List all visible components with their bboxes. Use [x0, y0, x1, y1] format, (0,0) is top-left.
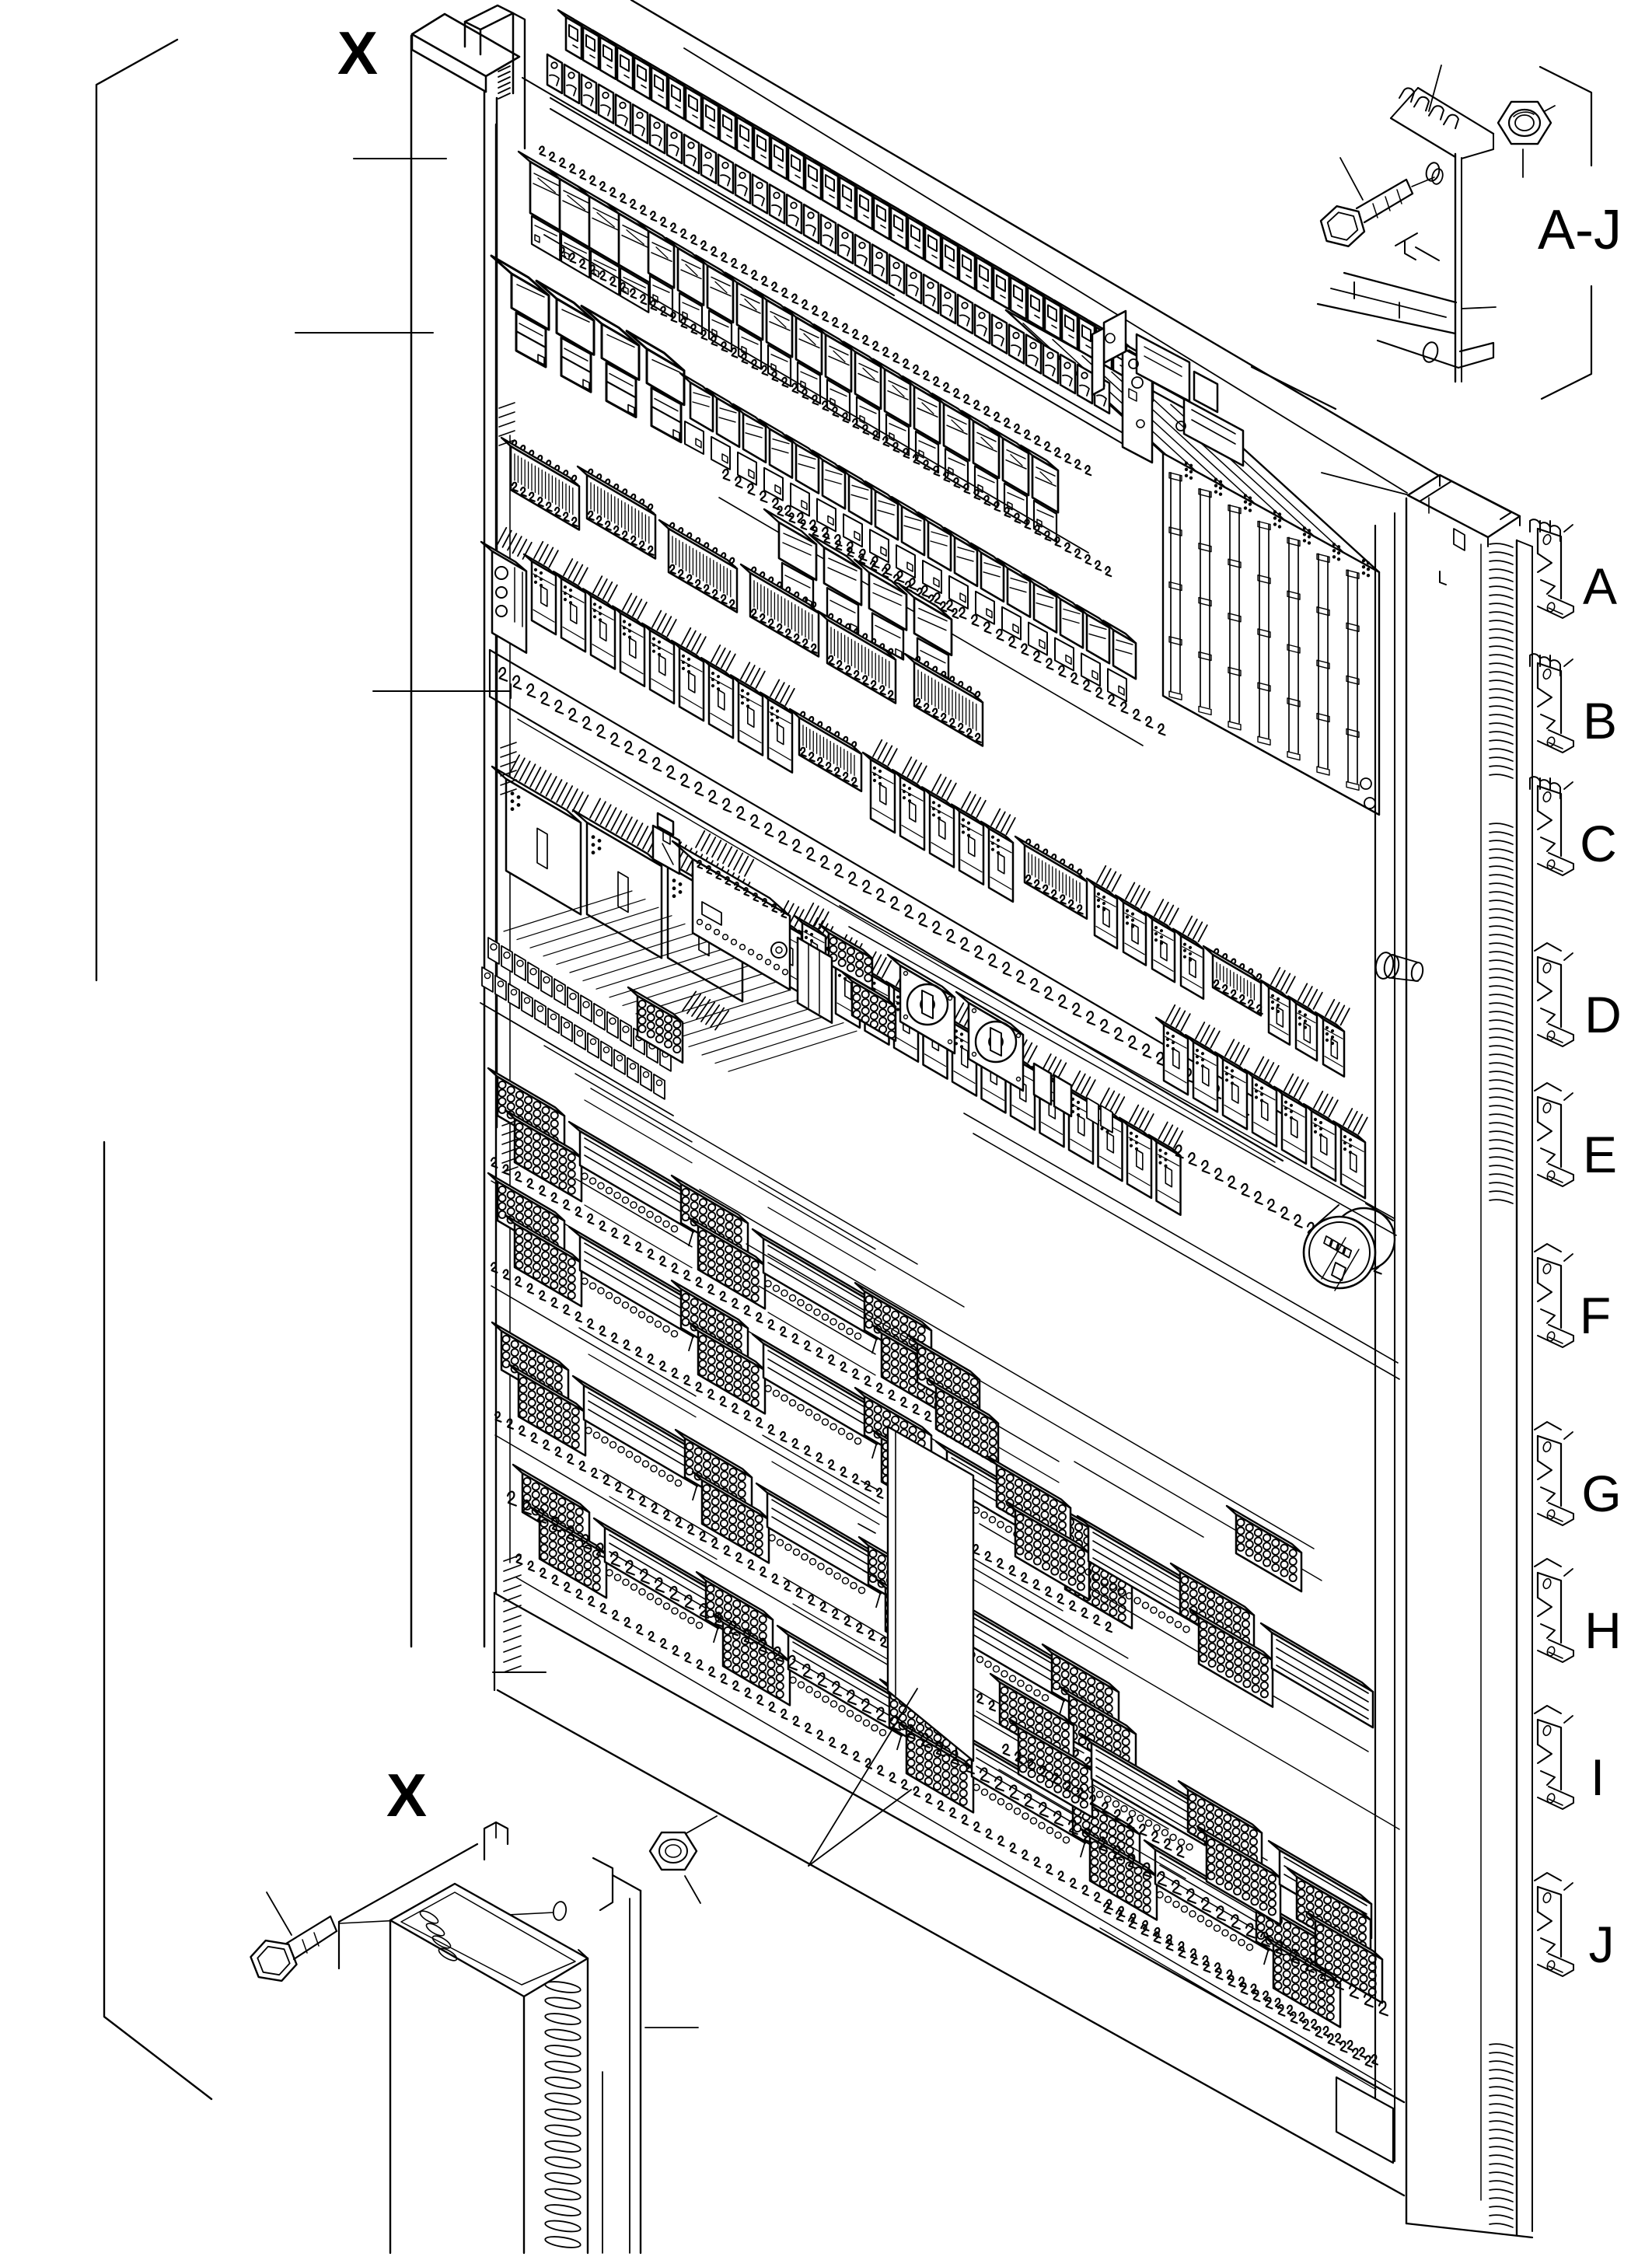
svg-text:D: D: [1584, 986, 1622, 1043]
svg-text:A-J: A-J: [1538, 199, 1622, 261]
svg-text:F: F: [1580, 1287, 1611, 1344]
svg-text:X: X: [386, 1761, 427, 1829]
svg-text:H: H: [1584, 1602, 1622, 1659]
svg-text:A: A: [1583, 557, 1617, 615]
svg-text:E: E: [1583, 1126, 1617, 1183]
svg-text:B: B: [1583, 692, 1617, 749]
svg-text:X: X: [337, 19, 378, 87]
svg-text:J: J: [1589, 1916, 1615, 1973]
svg-text:I: I: [1591, 1748, 1605, 1806]
svg-text:C: C: [1580, 815, 1617, 872]
svg-text:G: G: [1581, 1465, 1621, 1522]
